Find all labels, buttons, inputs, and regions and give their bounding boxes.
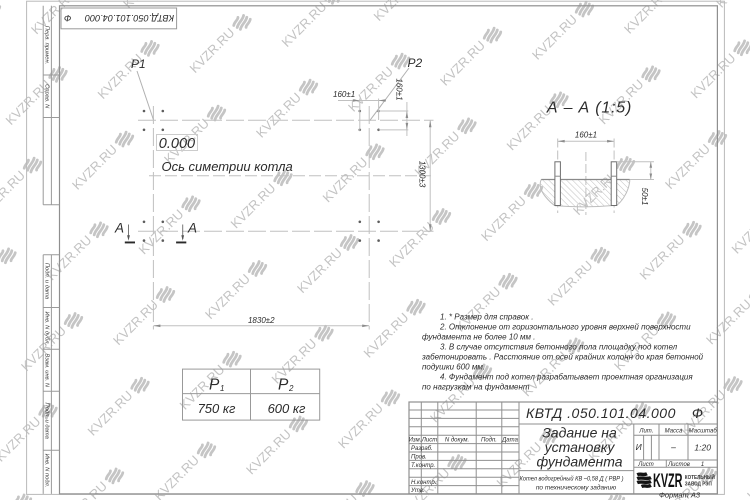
svg-text:Листов: Листов	[667, 462, 690, 468]
svg-text:KVZR.RU: KVZR.RU	[269, 336, 320, 387]
svg-text:750 кг: 750 кг	[198, 401, 236, 416]
svg-text:Изм.: Изм.	[409, 438, 422, 444]
svg-text:фундамента не более 10 мм .: фундамента не более 10 мм .	[422, 333, 535, 342]
svg-text:А: А	[114, 221, 124, 236]
svg-text:Разраб.: Разраб.	[411, 446, 433, 452]
svg-text:KVZR.RU: KVZR.RU	[151, 452, 202, 500]
svg-text:КОТЕЛЬНЫЙ: КОТЕЛЬНЫЙ	[685, 473, 715, 481]
svg-text:Ф: Ф	[692, 405, 703, 421]
svg-text:1:20: 1:20	[694, 443, 711, 453]
svg-text:Ф: Ф	[64, 13, 71, 23]
svg-text:Лист: Лист	[421, 438, 437, 444]
svg-text:Масштаб: Масштаб	[689, 428, 718, 434]
svg-text:4. Фундамент под котел разраб: 4. Фундамент под котел разрабатывает про…	[440, 373, 693, 382]
svg-text:KVZR.RU: KVZR.RU	[0, 258, 2, 309]
svg-text:KVZR.RU: KVZR.RU	[243, 426, 294, 477]
svg-text:Подп. и дата: Подп. и дата	[44, 403, 50, 440]
svg-text:по техническому заданию: по техническому заданию	[536, 484, 616, 492]
svg-text:1. * Размер для справок .: 1. * Размер для справок .	[440, 313, 533, 322]
svg-text:KVZR.RU: KVZR.RU	[703, 296, 750, 347]
svg-text:КВТД .050.101.04.000: КВТД .050.101.04.000	[526, 405, 676, 421]
svg-text:фундамента: фундамента	[537, 454, 623, 470]
svg-text:Дата: Дата	[501, 438, 518, 444]
svg-text:160±1: 160±1	[395, 78, 404, 100]
svg-text:KVZR.RU: KVZR.RU	[335, 400, 386, 451]
svg-text:KVZR.RU: KVZR.RU	[361, 310, 412, 361]
svg-text:160±1: 160±1	[333, 90, 355, 99]
svg-text:Пров.: Пров.	[411, 454, 427, 460]
svg-text:KVZR.RU: KVZR.RU	[59, 478, 110, 500]
svg-text:забетонировать . Расстояние от: забетонировать . Расстояние от осей край…	[421, 353, 704, 362]
svg-text:Перв. примен.: Перв. примен.	[44, 26, 50, 65]
svg-text:по нагрузкам на фундамент: по нагрузкам на фундамент	[422, 383, 530, 392]
svg-text:Котел водогрейный КВ –0,58 Д: Котел водогрейный КВ –0,58 Д ( РВР )	[520, 475, 624, 483]
svg-text:2: 2	[288, 384, 294, 393]
svg-text:А – А (1:5): А – А (1:5)	[546, 100, 632, 117]
svg-text:Инв. N подл.: Инв. N подл.	[44, 454, 50, 488]
svg-text:KVZR.RU: KVZR.RU	[478, 193, 529, 244]
svg-text:N докум.: N докум.	[445, 438, 469, 444]
svg-text:600 кг: 600 кг	[268, 401, 306, 416]
svg-text:Взам. инв. N: Взам. инв. N	[44, 353, 50, 388]
svg-text:KVZR.RU: KVZR.RU	[202, 271, 253, 322]
svg-text:–: –	[670, 442, 676, 452]
svg-text:Лист: Лист	[637, 462, 653, 468]
svg-text:Подп.: Подп.	[481, 438, 497, 444]
svg-text:Ось симетрии котла: Ось симетрии котла	[162, 159, 293, 174]
svg-text:Р: Р	[278, 377, 289, 394]
svg-text:KVZR.RU: KVZR.RU	[136, 206, 187, 257]
svg-text:KVZR.RU: KVZR.RU	[529, 12, 580, 63]
svg-text:подушки 600 мм.: подушки 600 мм.	[422, 363, 485, 372]
svg-text:ЗАВОД РЭП: ЗАВОД РЭП	[685, 482, 712, 488]
svg-text:KVZR.RU: KVZR.RU	[729, 206, 750, 257]
svg-text:KVZR.RU: KVZR.RU	[637, 232, 688, 283]
svg-text:KVZR.RU: KVZR.RU	[228, 180, 279, 231]
svg-text:КВТД.050.101.04.000: КВТД.050.101.04.000	[84, 13, 174, 23]
svg-text:Н.контр.: Н.контр.	[411, 480, 436, 486]
svg-text:KVZR.RU: KVZR.RU	[69, 142, 120, 193]
svg-text:2. Отклонение от горизонтальн: 2. Отклонение от горизонтального уровня …	[439, 323, 691, 332]
svg-text:Утв.: Утв.	[410, 488, 425, 494]
svg-text:KVZR.RU: KVZR.RU	[662, 141, 713, 192]
svg-text:Р1: Р1	[131, 57, 146, 71]
svg-text:50±1: 50±1	[640, 188, 649, 206]
svg-text:KVZR.RU: KVZR.RU	[310, 491, 361, 500]
svg-text:Справ. N: Справ. N	[44, 84, 50, 109]
svg-text:3. В случае отсутствия бетонн: 3. В случае отсутствия бетонного пола пл…	[440, 343, 678, 352]
svg-text:Т.контр.: Т.контр.	[411, 463, 435, 469]
svg-text:Лит.: Лит.	[638, 428, 653, 434]
svg-text:160±1: 160±1	[575, 131, 597, 140]
svg-text:KVZR.RU: KVZR.RU	[279, 0, 330, 50]
svg-text:И: И	[636, 442, 643, 452]
svg-text:KVZR.RU: KVZR.RU	[744, 452, 750, 500]
svg-text:KVZR.RU: KVZR.RU	[253, 90, 304, 141]
svg-text:KVZR.RU: KVZR.RU	[0, 414, 43, 465]
svg-text:KVZR.RU: KVZR.RU	[320, 154, 371, 205]
svg-text:Подп. и дата: Подп. и дата	[44, 263, 50, 300]
svg-text:Р2: Р2	[408, 56, 423, 70]
svg-text:Р: Р	[209, 377, 220, 394]
svg-text:1: 1	[220, 384, 224, 393]
svg-text:0.000: 0.000	[159, 136, 195, 152]
svg-text:Масса: Масса	[665, 428, 683, 434]
svg-text:KVZR.RU: KVZR.RU	[371, 0, 422, 24]
svg-text:KVZR.RU: KVZR.RU	[187, 25, 238, 76]
svg-text:Инв. N дубл.: Инв. N дубл.	[44, 312, 50, 346]
svg-text:KVZR.RU: KVZR.RU	[437, 38, 488, 89]
svg-text:KVZR.RU: KVZR.RU	[386, 219, 437, 270]
svg-text:KVZR.RU: KVZR.RU	[688, 50, 739, 101]
svg-text:А: А	[187, 221, 197, 236]
svg-text:1: 1	[701, 462, 704, 468]
svg-text:KVZR.RU: KVZR.RU	[294, 245, 345, 296]
svg-text:KVZR.RU: KVZR.RU	[0, 168, 28, 219]
svg-text:1300±3: 1300±3	[418, 161, 427, 188]
svg-text:KVZR.RU: KVZR.RU	[85, 388, 136, 439]
svg-text:KVZR.RU: KVZR.RU	[545, 258, 596, 309]
svg-text:Формат А3: Формат А3	[659, 490, 701, 499]
svg-text:1830±2: 1830±2	[248, 316, 275, 325]
svg-text:KVZR: KVZR	[653, 470, 683, 492]
